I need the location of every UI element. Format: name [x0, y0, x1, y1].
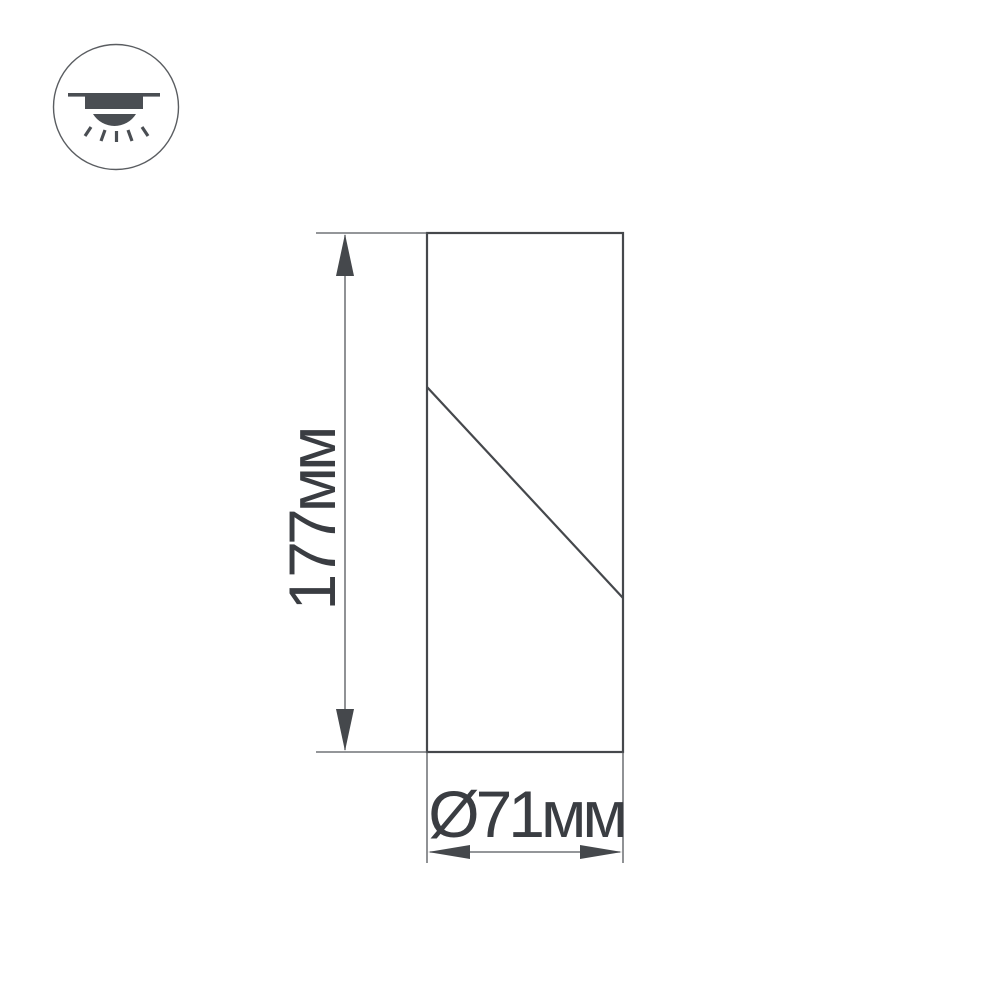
product-outline-group: [427, 233, 623, 752]
height-dimension-label: 177мм: [279, 430, 345, 611]
product-diagonal-edge: [427, 387, 623, 598]
arrowhead-up: [336, 234, 354, 276]
arrowheads-group: [336, 234, 622, 859]
product-dimension-diagram: 177мм Ø71мм: [0, 0, 1000, 1000]
diameter-dimension-label: Ø71мм: [428, 781, 624, 847]
arrowhead-down: [336, 709, 354, 751]
